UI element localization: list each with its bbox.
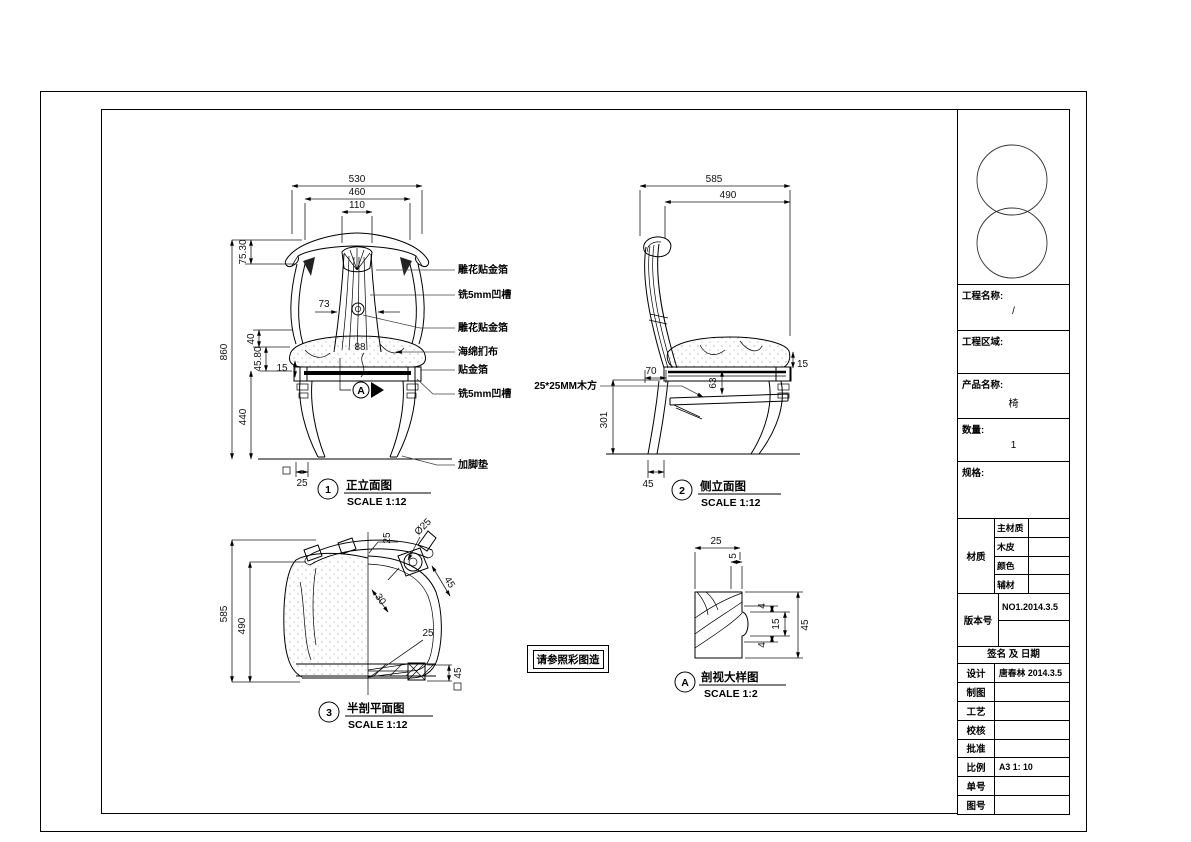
project-name-value: /	[962, 306, 1065, 317]
dim-text: 860	[219, 343, 230, 360]
row-draft: 制图	[958, 683, 1069, 702]
material-row: 辅材	[995, 575, 1069, 593]
callout-label: 海绵扪布	[458, 345, 498, 358]
dim-text: 530	[349, 174, 366, 185]
callout-label: 铣5mm凹槽	[458, 387, 511, 400]
material-row: 木皮	[995, 538, 1069, 557]
material-row: 主材质	[995, 519, 1069, 538]
section-marker-flag	[371, 382, 384, 398]
spec-cell: 规格:	[958, 462, 1069, 519]
material-label: 材质	[958, 519, 995, 593]
side-chair-linework	[606, 237, 800, 454]
row-design: 设计 唐春林 2014.3.5	[958, 664, 1069, 683]
view-scale-text: SCALE 1:2	[704, 688, 758, 700]
dim-text: 25	[296, 478, 308, 489]
project-name-cell: 工程名称: /	[958, 285, 1069, 331]
plan-upholstery-fill	[284, 553, 368, 679]
version-cell: 版本号 NO1.2014.3.5	[958, 594, 1069, 647]
view-title-text: 半剖平面图	[347, 701, 405, 715]
dim-text: Ø25	[413, 516, 434, 537]
view-number: 1	[325, 484, 331, 496]
dim-text: 585	[219, 605, 230, 622]
side-view-title: 2 侧立面图 SCALE 1:12	[672, 479, 781, 509]
note-box: 请参照彩图造	[527, 645, 609, 673]
project-area-cell: 工程区域:	[958, 331, 1069, 374]
quantity-cell: 数量: 1	[958, 419, 1069, 462]
callout-label: 雕花贴金箔	[458, 263, 508, 276]
signature-rows: 设计 唐春林 2014.3.5 制图 工艺 校核 批准 比例 A3 1: 1	[958, 664, 1069, 814]
dim-text: 63	[708, 377, 719, 389]
callout-label: 贴金箔	[457, 363, 488, 376]
row-scale: 比例 A3 1: 10	[958, 758, 1069, 777]
dim-text: 15	[771, 618, 782, 630]
view-scale-text: SCALE 1:12	[347, 496, 407, 508]
material-table: 材质 主材质 木皮 颜色 辅材	[958, 519, 1069, 594]
view-number: A	[681, 677, 689, 689]
view-front: A 530 460 110 860 75	[219, 174, 511, 508]
row-approve: 批准	[958, 740, 1069, 759]
dim-text: 5	[728, 553, 739, 559]
signature-header: 签名 及 日期	[958, 647, 1069, 664]
title-block: 工程名称: / 工程区域: 产品名称: 椅 数量: 1 规格: 材质 主材质 木…	[957, 109, 1070, 815]
dim-text: 585	[706, 174, 723, 185]
dim-text: 45	[442, 575, 457, 591]
view-scale-text: SCALE 1:12	[348, 719, 408, 731]
logo-circles-icon	[959, 112, 1068, 282]
project-area-label: 工程区域:	[962, 334, 1065, 348]
dim-text: 25	[710, 536, 722, 547]
product-name-cell: 产品名称: 椅	[958, 374, 1069, 419]
dim-text: 25	[382, 532, 393, 544]
view-detail: 25 5 4 15 4 45	[675, 536, 811, 700]
version-label: 版本号	[958, 594, 999, 646]
product-name-label: 产品名称:	[962, 377, 1065, 391]
dim-text: 45.80	[253, 346, 264, 371]
dim-text: 45	[453, 667, 464, 679]
view-scale-text: SCALE 1:12	[701, 497, 761, 509]
view-side: 585 490 70 15 63 301 45 25*	[534, 174, 808, 509]
callout-label: 加脚垫	[457, 458, 488, 471]
dim-text: 301	[599, 411, 610, 428]
datum-square	[454, 683, 461, 690]
dim-text: 25	[422, 628, 434, 639]
spec-label: 规格:	[962, 465, 1065, 479]
dim-text: 40	[246, 333, 257, 345]
quantity-value: 1	[962, 440, 1065, 451]
row-check: 校核	[958, 721, 1069, 740]
view-title-text: 正立面图	[346, 478, 392, 492]
dim-text: 460	[349, 187, 366, 198]
version-empty-row	[999, 621, 1069, 647]
callout-label: 25*25MM木方	[534, 379, 597, 392]
view-title-text: 侧立面图	[700, 479, 746, 493]
drawing-sheet: A 530 460 110 860 75	[0, 0, 1191, 842]
dim-text: 110	[349, 200, 365, 211]
product-name-value: 椅	[962, 395, 1065, 410]
view-number: 3	[326, 707, 332, 719]
callout-label: 雕花贴金箔	[458, 321, 508, 334]
dim-text: 490	[237, 617, 248, 634]
quantity-label: 数量:	[962, 422, 1065, 436]
detail-linework	[695, 592, 748, 658]
gilt-band	[304, 371, 411, 375]
view-title-text: 剖视大样图	[701, 670, 759, 684]
dim-text: 88	[354, 342, 366, 353]
datum-square	[283, 467, 290, 474]
dim-text: 15	[797, 359, 809, 370]
callout-label: 铣5mm凹槽	[458, 288, 511, 301]
section-marker-letter: A	[357, 385, 365, 397]
plan-view-title: 3 半剖平面图 SCALE 1:12	[319, 701, 433, 731]
row-craft: 工艺	[958, 702, 1069, 721]
dim-text: 73	[318, 299, 330, 310]
row-drawing-number: 图号	[958, 796, 1069, 814]
view-number: 2	[679, 485, 685, 497]
view-plan: 585 490 25 Ø25 45 30 25 45	[219, 516, 464, 731]
detail-view-title: A 剖视大样图 SCALE 1:2	[675, 670, 786, 700]
dim-text: 70	[645, 366, 657, 377]
dim-text: 45	[800, 619, 811, 631]
front-view-title: 1 正立面图 SCALE 1:12	[318, 478, 431, 508]
dim-text: 15	[276, 363, 288, 374]
logo-cell	[958, 110, 1069, 285]
side-dimensions: 585 490 70 15 63 301 45 25*	[534, 174, 808, 490]
dim-text: 440	[238, 408, 249, 425]
row-order-number: 单号	[958, 777, 1069, 796]
dim-text: 490	[720, 190, 737, 201]
detail-dimensions: 25 5 4 15 4 45	[695, 536, 811, 658]
dim-text: 4	[757, 603, 768, 609]
dim-text: 75.30	[238, 239, 249, 264]
project-name-label: 工程名称:	[962, 288, 1065, 302]
front-dimensions: 530 460 110 860 75.30 40	[219, 174, 422, 489]
dim-text: 4	[757, 642, 768, 648]
material-row: 颜色	[995, 557, 1069, 576]
version-value: NO1.2014.3.5	[999, 594, 1069, 621]
dim-text: 45	[642, 479, 654, 490]
note-text: 请参照彩图造	[533, 650, 604, 669]
plan-linework	[284, 531, 442, 695]
